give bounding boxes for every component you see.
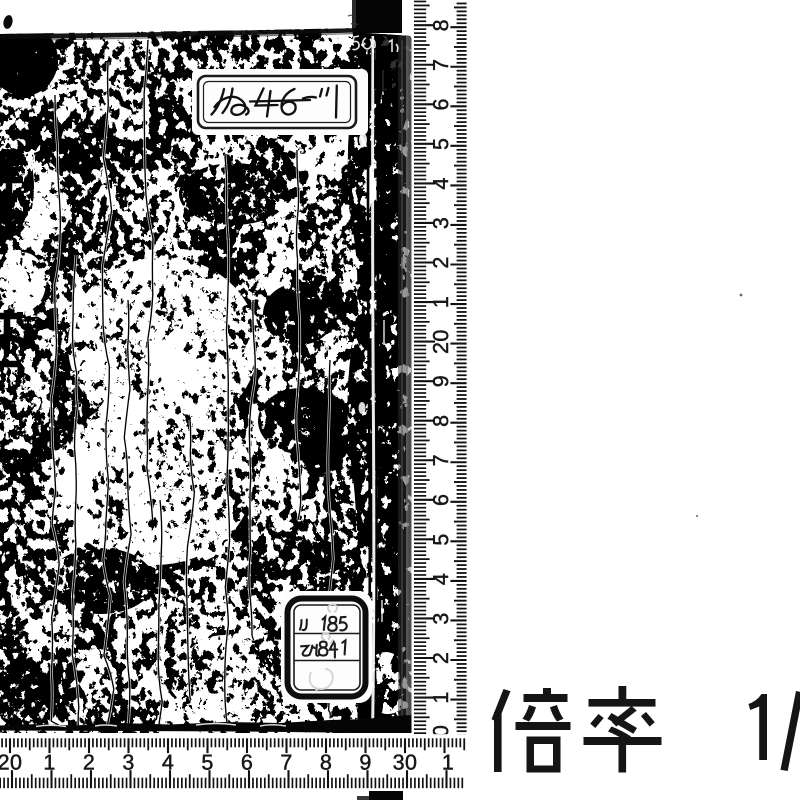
svg-text:5: 5	[429, 138, 453, 150]
svg-text:1: 1	[429, 296, 453, 308]
svg-text:1: 1	[43, 751, 55, 775]
svg-text:1: 1	[429, 691, 453, 703]
svg-text:1: 1	[442, 751, 454, 775]
svg-text:7: 7	[429, 454, 453, 466]
svg-text:4: 4	[429, 573, 453, 585]
svg-text:7: 7	[280, 751, 292, 775]
svg-text:30: 30	[393, 751, 418, 775]
svg-text:8: 8	[429, 415, 453, 427]
svg-text:2: 2	[429, 652, 453, 664]
svg-text:5: 5	[201, 751, 213, 775]
svg-text:20: 20	[0, 751, 22, 775]
svg-text:8: 8	[429, 19, 453, 31]
svg-text:7: 7	[429, 59, 453, 71]
svg-text:2: 2	[83, 751, 95, 775]
svg-text:20: 20	[429, 329, 453, 354]
svg-text:3: 3	[429, 217, 453, 229]
svg-text:6: 6	[241, 751, 253, 775]
svg-text:3: 3	[122, 751, 134, 775]
svg-text:4: 4	[429, 177, 453, 189]
svg-text:6: 6	[429, 98, 453, 110]
svg-text:8: 8	[320, 751, 332, 775]
svg-text:9: 9	[429, 375, 453, 387]
svg-text:4: 4	[162, 751, 174, 775]
svg-text:2: 2	[429, 256, 453, 268]
svg-text:3: 3	[429, 612, 453, 624]
svg-text:9: 9	[359, 751, 371, 775]
svg-text:6: 6	[429, 494, 453, 506]
svg-text:5: 5	[429, 533, 453, 545]
